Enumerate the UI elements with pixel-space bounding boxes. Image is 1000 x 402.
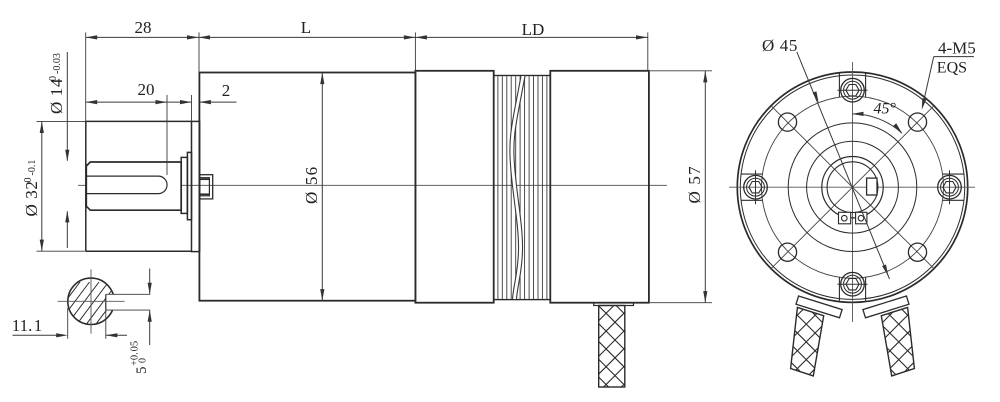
svg-text:LD: LD [522, 20, 545, 39]
svg-text:28: 28 [135, 18, 152, 37]
svg-text:Ø 32: Ø 32 [22, 181, 41, 217]
svg-text:L: L [301, 18, 311, 37]
svg-text:0: 0 [138, 358, 149, 363]
svg-text:EQS: EQS [937, 60, 967, 77]
svg-text:20: 20 [138, 80, 155, 99]
svg-text:Ø 14: Ø 14 [47, 78, 66, 114]
svg-text:45°: 45° [874, 101, 897, 118]
svg-text:4-M5: 4-M5 [938, 39, 976, 58]
svg-text:11. 1: 11. 1 [12, 316, 43, 335]
svg-text:5: 5 [134, 367, 150, 375]
svg-text:Ø 45: Ø 45 [762, 36, 798, 55]
svg-text:2: 2 [222, 81, 231, 100]
svg-text:Ø 57: Ø 57 [685, 165, 704, 203]
svg-text:-0.1: -0.1 [27, 160, 38, 176]
svg-text:0: 0 [23, 178, 34, 183]
svg-text:0: 0 [48, 76, 59, 81]
svg-text:-0.03: -0.03 [52, 53, 63, 74]
svg-text:Ø 56: Ø 56 [302, 166, 321, 204]
